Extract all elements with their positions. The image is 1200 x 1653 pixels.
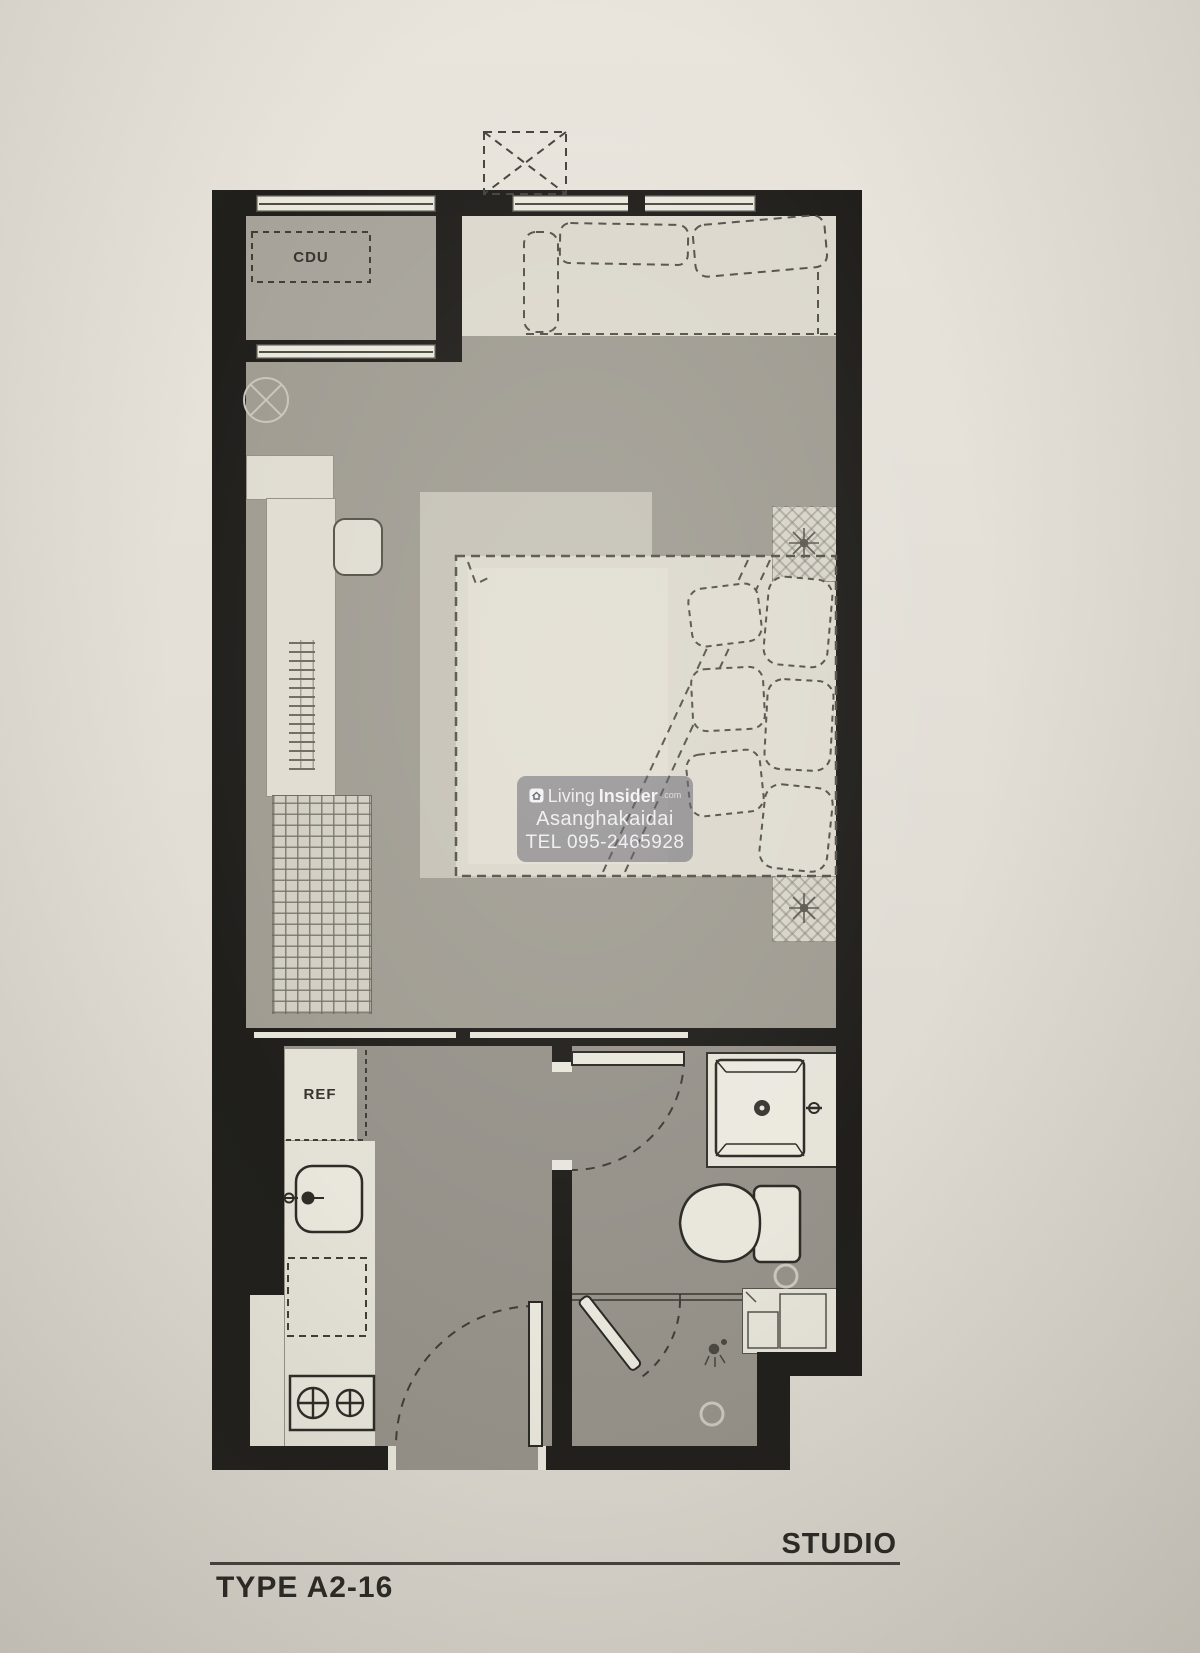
entry-door-opening-floor (396, 1446, 538, 1470)
ac-unit-marker (484, 132, 566, 194)
desk-drawer-detail (289, 640, 315, 770)
divider-door-track-right (470, 1032, 688, 1038)
divider-door-track-left (254, 1032, 456, 1038)
watermark-brand-prefix: Living (548, 786, 595, 806)
cdu-label: CDU (252, 232, 370, 282)
watermark-agent-name: Asanghakaidai (536, 808, 674, 831)
wardrobe (272, 795, 372, 1014)
kitchen-counter-extension (250, 1295, 284, 1446)
entry-door-jamb-right (538, 1446, 546, 1470)
window-side-floor-strip (462, 216, 836, 336)
watermark-phone: TEL 095-2465928 (526, 832, 685, 854)
nightstand-top (772, 506, 838, 582)
wall-bath-partition-lower (552, 1170, 572, 1448)
shower-floor (572, 1352, 757, 1446)
house-cube-icon (529, 788, 544, 803)
watermark-badge: LivingInsider.com Asanghakaidai TEL 095-… (517, 776, 693, 862)
plan-type-code: TYPE A2-16 (216, 1571, 393, 1605)
title-underline (210, 1562, 900, 1565)
wall-left-kitchen (212, 1028, 284, 1295)
wall-bath-partition-upper (552, 1046, 572, 1062)
balcony-louver-window (256, 344, 436, 359)
bath-door-jamb-bottom (552, 1160, 572, 1170)
kitchen-counter (284, 1140, 376, 1448)
wall-balcony-right (436, 190, 462, 362)
bath-door-opening-floor (552, 1062, 572, 1170)
watermark-brand-tld: .com (662, 785, 682, 805)
entry-door-jamb-left (388, 1446, 396, 1470)
wall-left (212, 190, 246, 1028)
pipe-shaft-alcove (742, 1288, 838, 1354)
unit-type-title: STUDIO (600, 1528, 897, 1561)
scanned-floor-plan-page: CDU REF LivingInsider.com Asanghakaidai … (0, 0, 1200, 1653)
watermark-brand-suffix: Insider (599, 786, 658, 806)
ref-label: REF (284, 1048, 356, 1140)
wall-left-lower (212, 1295, 250, 1470)
watermark-brand-row: LivingInsider.com (529, 785, 682, 807)
wall-step-bottom-right (757, 1352, 862, 1376)
bath-door-jamb-top (552, 1062, 572, 1072)
main-window-mullion (628, 193, 645, 214)
nightstand-bottom (772, 876, 838, 942)
balcony-window (256, 195, 436, 212)
desk-return (246, 455, 334, 500)
wall-right (836, 190, 862, 1352)
vanity-counter (706, 1052, 840, 1168)
